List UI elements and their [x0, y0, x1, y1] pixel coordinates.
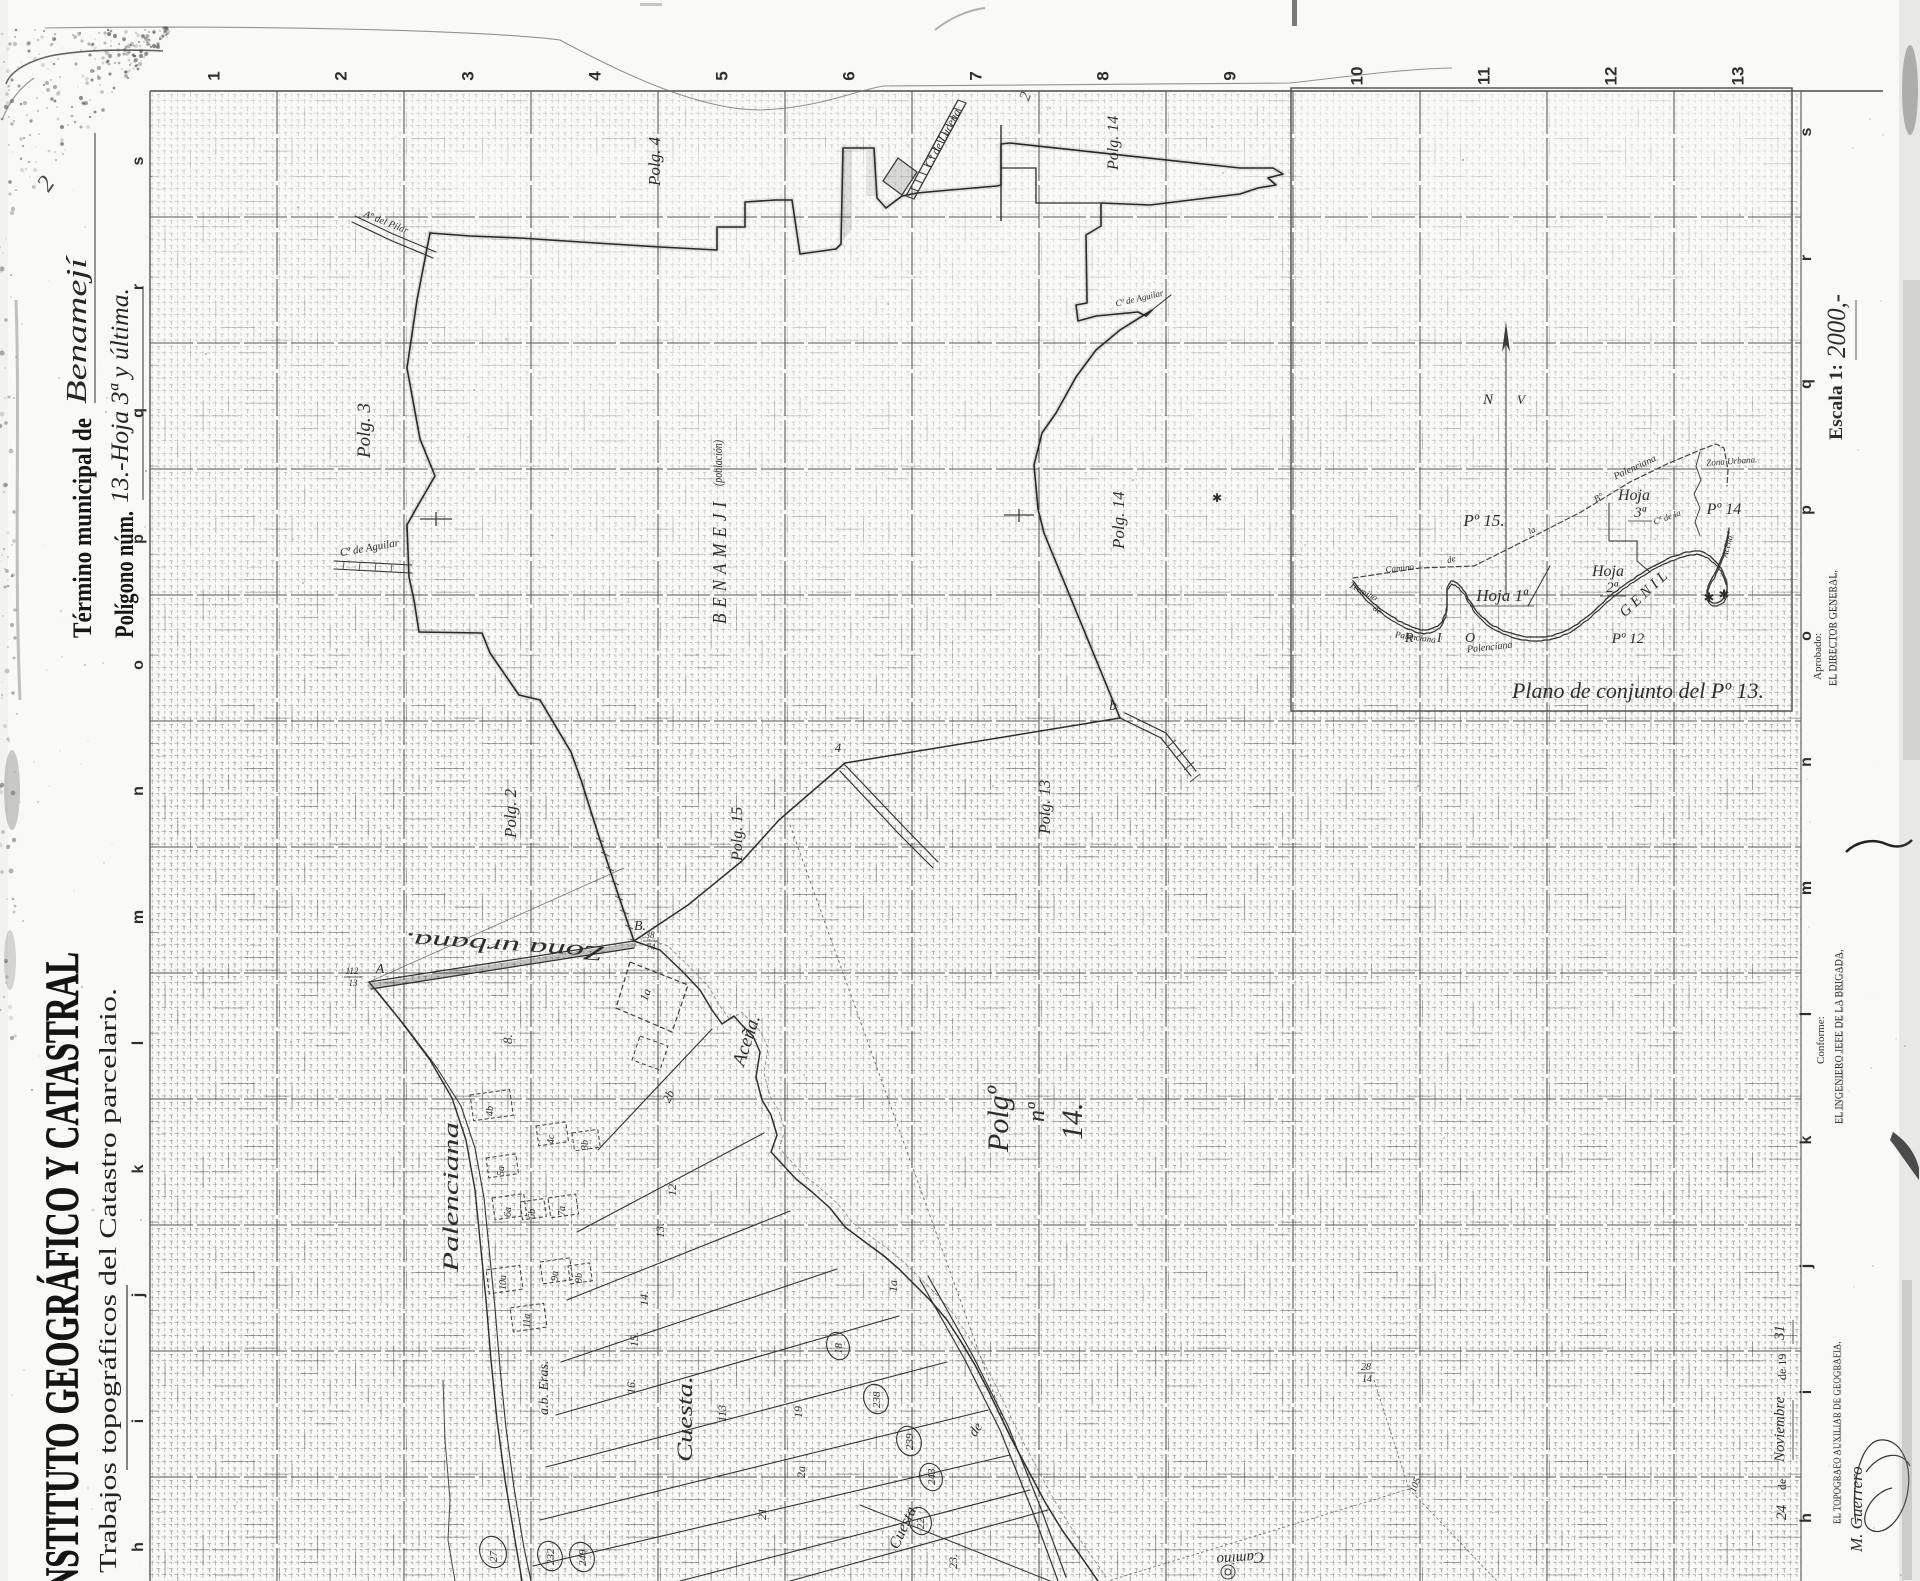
svg-text:Polg. 3: Polg. 3 — [354, 403, 375, 459]
svg-text:N: N — [1482, 392, 1494, 408]
svg-text:6a: 6a — [503, 1207, 514, 1217]
svg-text:i: i — [130, 1419, 147, 1423]
svg-text:13.-Hoja 3ª y última.: 13.-Hoja 3ª y última. — [107, 288, 134, 503]
svg-text:E̲L̲ I̲N̲G̲E̲N̲I̲E̲R̲O̲ J̲E̲F̲: E̲L̲ I̲N̲G̲E̲N̲I̲E̲R̲O̲ J̲E̲F̲E̲ D̲E̲ L̲… — [1834, 949, 1845, 1124]
svg-text:5a: 5a — [496, 1166, 507, 1176]
svg-text:o: o — [130, 660, 147, 670]
svg-text:8: 8 — [1094, 71, 1113, 80]
svg-text:Pº 14: Pº 14 — [1706, 501, 1742, 518]
svg-text:5: 5 — [713, 71, 732, 80]
svg-text:nº: nº — [1024, 1102, 1050, 1122]
svg-text:B.: B. — [634, 919, 646, 934]
svg-text:n: n — [130, 786, 147, 796]
svg-text:Pº 15.: Pº 15. — [1462, 511, 1504, 530]
svg-text:9b: 9b — [574, 1273, 585, 1283]
svg-text:13: 13 — [1729, 67, 1748, 86]
svg-text:Palenciana: Palenciana — [438, 1122, 463, 1273]
svg-text:27: 27 — [488, 1551, 500, 1563]
svg-text:6: 6 — [840, 71, 859, 80]
svg-text:239: 239 — [904, 1433, 916, 1450]
svg-text:Polg. 2: Polg. 2 — [501, 788, 520, 839]
svg-text:232: 232 — [545, 1548, 557, 1565]
svg-text:11: 11 — [1475, 67, 1494, 85]
svg-text:Camino: Camino — [1216, 1548, 1265, 1567]
svg-text:(población): (población) — [710, 440, 725, 486]
svg-text:1a: 1a — [886, 1280, 900, 1292]
svg-text:15.: 15. — [627, 1332, 641, 1347]
svg-text:Trabajos topográficos del Cata: Trabajos topográficos del Catastro parce… — [96, 988, 122, 1573]
svg-text:4: 4 — [835, 740, 842, 755]
svg-text:Polg. 13: Polg. 13 — [1037, 780, 1054, 835]
svg-text:12: 12 — [1602, 67, 1621, 86]
svg-text:113: 113 — [715, 1405, 729, 1422]
svg-text:31: 31 — [1772, 1325, 1788, 1341]
svg-text:Pº 12: Pº 12 — [1611, 631, 1645, 647]
svg-text:Benamejí: Benamejí — [62, 255, 93, 404]
svg-text:21: 21 — [755, 1508, 769, 1520]
svg-text:2a: 2a — [794, 1466, 808, 1478]
svg-text:k: k — [130, 1164, 147, 1173]
svg-text:9a: 9a — [550, 1271, 561, 1281]
svg-text:38: 38 — [645, 930, 656, 940]
svg-text:j: j — [1798, 1264, 1815, 1269]
svg-text:m: m — [130, 910, 147, 924]
svg-text:BENAMEJI: BENAMEJI — [709, 496, 731, 624]
svg-text:Plano de conjunto del Pº 13.: Plano de conjunto del Pº 13. — [1511, 678, 1764, 703]
svg-text:Cuesta.: Cuesta. — [672, 1376, 697, 1462]
svg-text:Aprobado:: Aprobado: — [1812, 633, 1824, 680]
svg-text:✱: ✱ — [1719, 587, 1730, 602]
svg-text:18: 18 — [833, 1343, 845, 1355]
svg-text:12: 12 — [665, 1184, 679, 1196]
svg-text:238: 238 — [871, 1391, 883, 1408]
svg-text:Término municipal de: Término municipal de — [68, 418, 97, 638]
svg-text:Escala 1:: Escala 1: — [1826, 364, 1847, 440]
svg-text:3b: 3b — [580, 1140, 591, 1151]
svg-text:10a: 10a — [498, 1275, 509, 1290]
svg-text:112: 112 — [346, 966, 359, 976]
svg-text:s: s — [130, 156, 147, 165]
svg-text:243: 243 — [926, 1468, 938, 1485]
svg-text:24: 24 — [1774, 1505, 1790, 1521]
svg-text:INSTITUTO GEOGRÁFICO Y CATASTR: INSTITUTO GEOGRÁFICO Y CATASTRAL — [36, 952, 89, 1581]
svg-text:Hoja: Hoja — [1591, 563, 1624, 580]
svg-text:Noviembre: Noviembre — [1772, 1396, 1788, 1463]
svg-text:Conforme:: Conforme: — [1815, 1016, 1827, 1064]
svg-text:E̲L̲ T̲O̲P̲̲̲O̲G̲R̲A̲F̲O̲ A̲U̲: E̲L̲ T̲O̲P̲̲̲O̲G̲R̲A̲F̲O̲ A̲U̲X̲I̲L̲I̲A̲… — [1832, 1341, 1842, 1524]
svg-text:4c: 4c — [546, 1134, 557, 1144]
svg-text:Polg. 4: Polg. 4 — [645, 136, 664, 187]
svg-text:✱: ✱ — [1704, 590, 1715, 605]
svg-text:8.: 8. — [500, 1034, 515, 1044]
svg-text:4b: 4b — [485, 1106, 496, 1116]
svg-text:Polg. 14: Polg. 14 — [1105, 116, 1122, 171]
svg-text:r: r — [1798, 255, 1815, 261]
svg-text:2000,-: 2000,- — [1822, 294, 1851, 358]
svg-text:de: de — [1775, 1479, 1789, 1490]
svg-text:Polgº: Polgº — [982, 1085, 1015, 1153]
svg-text:de 19: de 19 — [1775, 1354, 1789, 1380]
svg-text:n: n — [1798, 757, 1815, 767]
svg-text:16.: 16. — [624, 1379, 638, 1394]
svg-text:3: 3 — [459, 71, 478, 80]
svg-text:19: 19 — [791, 1406, 805, 1418]
svg-text:k: k — [1798, 1135, 1815, 1144]
svg-text:l: l — [1798, 1012, 1815, 1016]
svg-text:13.: 13. — [653, 1223, 667, 1238]
svg-text:m: m — [1798, 881, 1815, 895]
svg-text:14.: 14. — [1056, 1103, 1089, 1141]
svg-text:a.b. Eras.: a.b. Eras. — [537, 1361, 552, 1415]
svg-text:b: b — [1109, 698, 1117, 714]
svg-text:Polg. 15: Polg. 15 — [729, 807, 746, 862]
svg-text:s: s — [1798, 127, 1815, 136]
svg-text:✱: ✱ — [1212, 491, 1222, 505]
svg-text:14.: 14. — [637, 1291, 651, 1306]
svg-text:h: h — [1798, 1513, 1815, 1523]
svg-text:h: h — [130, 1542, 147, 1552]
svg-text:6b: 6b — [527, 1209, 538, 1219]
svg-text:p: p — [1798, 505, 1815, 515]
svg-text:28: 28 — [1361, 1362, 1371, 1373]
svg-text:l: l — [130, 1041, 147, 1045]
svg-text:Polígono núm.: Polígono núm. — [110, 511, 139, 638]
svg-text:j: j — [130, 1293, 147, 1298]
svg-text:13: 13 — [349, 978, 359, 988]
svg-text:Hoja 1ª: Hoja 1ª — [1475, 586, 1529, 605]
svg-text:i: i — [1798, 1390, 1815, 1394]
svg-text:1: 1 — [205, 71, 224, 80]
svg-text:22: 22 — [915, 1518, 927, 1530]
svg-text:7a: 7a — [557, 1206, 568, 1216]
svg-text:23.: 23. — [946, 1554, 960, 1569]
svg-text:3ª: 3ª — [1633, 505, 1647, 521]
svg-text:7: 7 — [967, 71, 986, 80]
svg-text:14: 14 — [1362, 1374, 1372, 1385]
svg-text:q: q — [1798, 379, 1815, 389]
svg-text:Polg. 14: Polg. 14 — [1109, 491, 1128, 550]
svg-text:A: A — [375, 962, 385, 977]
svg-text:Hoja: Hoja — [1617, 487, 1650, 504]
svg-text:E̲L̲ D̲I̲R̲E̲C̲T̲O̲R̲ G̲E̲N̲E̲: E̲L̲ D̲I̲R̲E̲C̲T̲O̲R̲ G̲E̲N̲E̲R̲A̲L̲, — [1828, 570, 1839, 686]
svg-text:2ª: 2ª — [1606, 580, 1619, 596]
svg-text:9: 9 — [1221, 71, 1240, 80]
svg-text:11a: 11a — [522, 1314, 533, 1328]
svg-text:4: 4 — [586, 71, 605, 81]
svg-text:2: 2 — [332, 71, 351, 80]
